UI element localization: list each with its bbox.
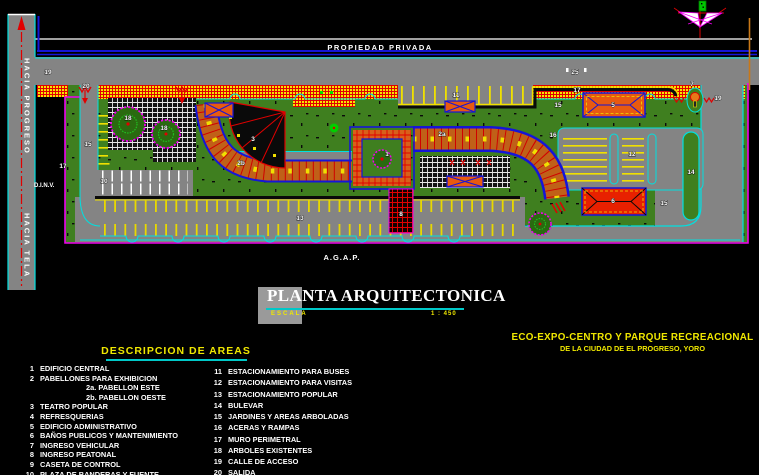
legend-item-label: EDIFICIO CENTRAL (40, 364, 109, 374)
legend-item-label: JARDINES Y AREAS ARBOLADAS (228, 411, 349, 422)
plan-number-label: 7 (690, 81, 694, 88)
scale-value: 1 : 450 (431, 311, 457, 317)
plan-number-label: 15 (660, 200, 668, 207)
legend-item: 13ESTACIONAMIENTO POPULAR (206, 389, 352, 400)
legend-item-label: ESTACIONAMIENTO PARA BUSES (228, 366, 349, 377)
legend-item: 19CALLE DE ACCESO (206, 456, 352, 467)
legend-item: 4REFRESQUERIAS (18, 412, 178, 422)
legend-item-number: 3 (18, 402, 34, 412)
plan-number-label: 18 (124, 115, 132, 122)
plan-number-label: 25 (571, 69, 579, 76)
legend-item-number: 20 (206, 467, 222, 475)
legend-item-label: REFRESQUERIAS (40, 412, 104, 422)
boulevard-median (683, 132, 699, 220)
legend-item: 6BAÑOS PUBLICOS Y MANTENIMIENTO (18, 431, 178, 441)
plan-number-label: 19 (714, 95, 722, 102)
title-block: PLANTA ARQUITECTONICA ESCALA 1 : 450 (256, 286, 470, 328)
cad-screenshot: PROPIEDAD PRIVADA A.G.A.P. D.I.N.V. HACI… (0, 0, 759, 475)
legend-item-label: 2a. PABELLON ESTE (86, 383, 160, 393)
access-road-top (35, 57, 759, 85)
agap-label: A.G.A.P. (323, 253, 360, 262)
plan-number-label: 3 (251, 136, 255, 143)
legend-item-number: 11 (206, 366, 222, 377)
legend-item-label: INGRESO PEATONAL (40, 450, 116, 460)
central-building (350, 127, 414, 189)
legend-item-number: 19 (206, 456, 222, 467)
legend-item-number: 2 (18, 374, 34, 384)
dinv-label: D.I.N.V. (34, 183, 55, 189)
legend-item-number: 6 (18, 431, 34, 441)
plan-number-label: 14 (687, 169, 695, 176)
legend-item: 9CASETA DE CONTROL (18, 460, 178, 470)
legend-item-number: 16 (206, 422, 222, 433)
legend-item-label: BULEVAR (228, 400, 263, 411)
legend-item-number (64, 383, 80, 393)
legend-heading-underline (106, 359, 247, 361)
plan-number-label: 15 (554, 102, 562, 109)
legend-heading: DESCRIPCION DE AREAS (61, 345, 291, 357)
legend-item: 8INGRESO PEATONAL (18, 450, 178, 460)
plan-number-label: 1 (385, 151, 389, 158)
legend-item: 11ESTACIONAMIENTO PARA BUSES (206, 366, 352, 377)
legend-item: 17MURO PERIMETRAL (206, 434, 352, 445)
legend-item: 1EDIFICIO CENTRAL (18, 364, 178, 374)
legend-item: 2PABELLONES PARA EXHIBICION (18, 374, 178, 384)
legend-item-number: 18 (206, 445, 222, 456)
legend-item-label: ESTACIONAMIENTO PARA VISITAS (228, 377, 352, 388)
legend-item-label: MURO PERIMETRAL (228, 434, 301, 445)
drawing-title: PLANTA ARQUITECTONICA (267, 286, 506, 306)
legend-item: 14BULEVAR (206, 400, 352, 411)
legend-item-label: ARBOLES EXISTENTES (228, 445, 312, 456)
legend-item-number: 8 (18, 450, 34, 460)
legend-item-label: SALIDA (228, 467, 256, 475)
legend-item-label: INGRESO VEHICULAR (40, 441, 119, 451)
parking-visitors (558, 128, 703, 190)
control-booth (691, 93, 700, 102)
plan-number-label: 2b (237, 160, 245, 167)
legend-item: 20SALIDA (206, 467, 352, 475)
legend-item-number: 9 (18, 460, 34, 470)
legend-item: 2b. PABELLON OESTE (64, 393, 178, 403)
legend-item: 3TEATRO POPULAR (18, 402, 178, 412)
legend-item-label: ESTACIONAMIENTO POPULAR (228, 389, 338, 400)
legend-item-label: PLAZA DE BANDERAS Y FUENTE (40, 470, 159, 475)
legend-item-label: PABELLONES PARA EXHIBICION (40, 374, 157, 384)
legend-item: 16ACERAS Y RAMPAS (206, 422, 352, 433)
legend-item-number: 5 (18, 422, 34, 432)
plan-number-label: 15 (84, 141, 92, 148)
project-name-line2: DE LA CIUDAD DE EL PROGRESO, YORO (505, 344, 759, 353)
legend-item: 10PLAZA DE BANDERAS Y FUENTE (18, 470, 178, 475)
plan-number-label: 6 (611, 198, 615, 205)
private-property-label: PROPIEDAD PRIVADA (327, 43, 432, 52)
plan-number-label: 11 (453, 92, 460, 99)
legend-item-number: 10 (18, 470, 34, 475)
legend-item-number: 12 (206, 377, 222, 388)
legend-item: 7INGRESO VEHICULAR (18, 441, 178, 451)
legend-item: 2a. PABELLON ESTE (64, 383, 178, 393)
plan-number-label: 17 (573, 87, 581, 94)
plan-number-label: 10 (100, 178, 108, 185)
legend-item-number: 4 (18, 412, 34, 422)
legend-item-label: CASETA DE CONTROL (40, 460, 120, 470)
scale-label: ESCALA (271, 311, 308, 317)
project-heading: ECO-EXPO-CENTRO Y PARQUE RECREACIONAL DE… (505, 332, 759, 353)
plan-number-label: 8 (399, 211, 403, 218)
road-name-hacia-progreso: HACIA PROGRESO (23, 58, 32, 155)
site-plan-drawing: PROPIEDAD PRIVADA A.G.A.P. D.I.N.V. HACI… (0, 0, 759, 300)
plan-number-label: 12 (628, 151, 636, 158)
plan-number-label: 20 (82, 83, 90, 90)
legend-item-number: 17 (206, 434, 222, 445)
plan-number-label: 16 (549, 132, 557, 139)
legend-item: 12ESTACIONAMIENTO PARA VISITAS (206, 377, 352, 388)
plan-number-label: 5 (611, 102, 615, 109)
legend-item-label: ACERAS Y RAMPAS (228, 422, 299, 433)
legend-item-label: TEATRO POPULAR (40, 402, 108, 412)
plan-number-label: 2a (438, 131, 446, 138)
legend-item: 15JARDINES Y AREAS ARBOLADAS (206, 411, 352, 422)
road-name-hacia-tela: HACIA TELA (23, 213, 32, 278)
project-name-line1: ECO-EXPO-CENTRO Y PARQUE RECREACIONAL (505, 332, 759, 343)
legend-item: 5EDIFICIO ADMINISTRATIVO (18, 422, 178, 432)
legend-column-right: 11ESTACIONAMIENTO PARA BUSES12ESTACIONAM… (206, 366, 352, 475)
legend-item: 18ARBOLES EXISTENTES (206, 445, 352, 456)
parking-rows-left (98, 170, 193, 196)
legend-item-label: BAÑOS PUBLICOS Y MANTENIMIENTO (40, 431, 178, 441)
legend-item-number (64, 393, 80, 403)
plan-number-label: 13 (296, 215, 304, 222)
legend-item-number: 14 (206, 400, 222, 411)
legend-column-left: 1EDIFICIO CENTRAL2PABELLONES PARA EXHIBI… (18, 364, 178, 475)
plan-number-label: 19 (44, 69, 52, 76)
legend-item-number: 13 (206, 389, 222, 400)
legend-item-label: 2b. PABELLON OESTE (86, 393, 166, 403)
title-underline (266, 308, 464, 310)
legend-item-label: EDIFICIO ADMINISTRATIVO (40, 422, 137, 432)
legend-item-number: 7 (18, 441, 34, 451)
legend-item-number: 15 (206, 411, 222, 422)
plan-number-label: 17 (59, 163, 67, 170)
plan-number-label: 18 (160, 125, 168, 132)
legend-item-label: CALLE DE ACCESO (228, 456, 298, 467)
legend-item-number: 1 (18, 364, 34, 374)
